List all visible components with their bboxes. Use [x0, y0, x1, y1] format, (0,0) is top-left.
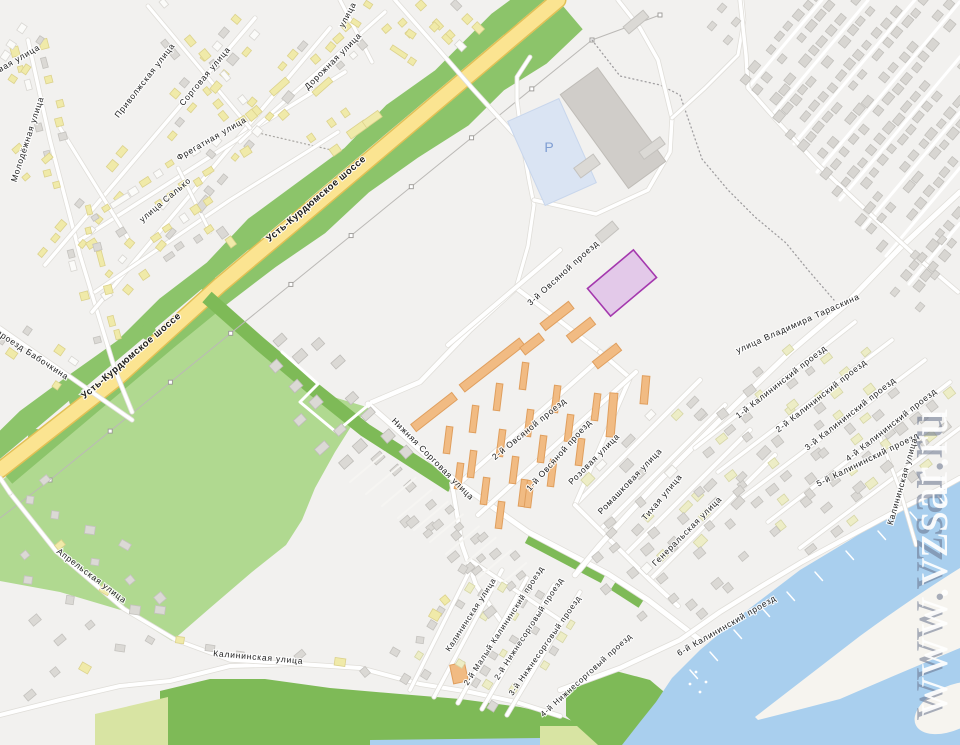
svg-text:Р: Р: [544, 139, 553, 155]
svg-text:www.vzsar.ru: www.vzsar.ru: [899, 408, 959, 716]
